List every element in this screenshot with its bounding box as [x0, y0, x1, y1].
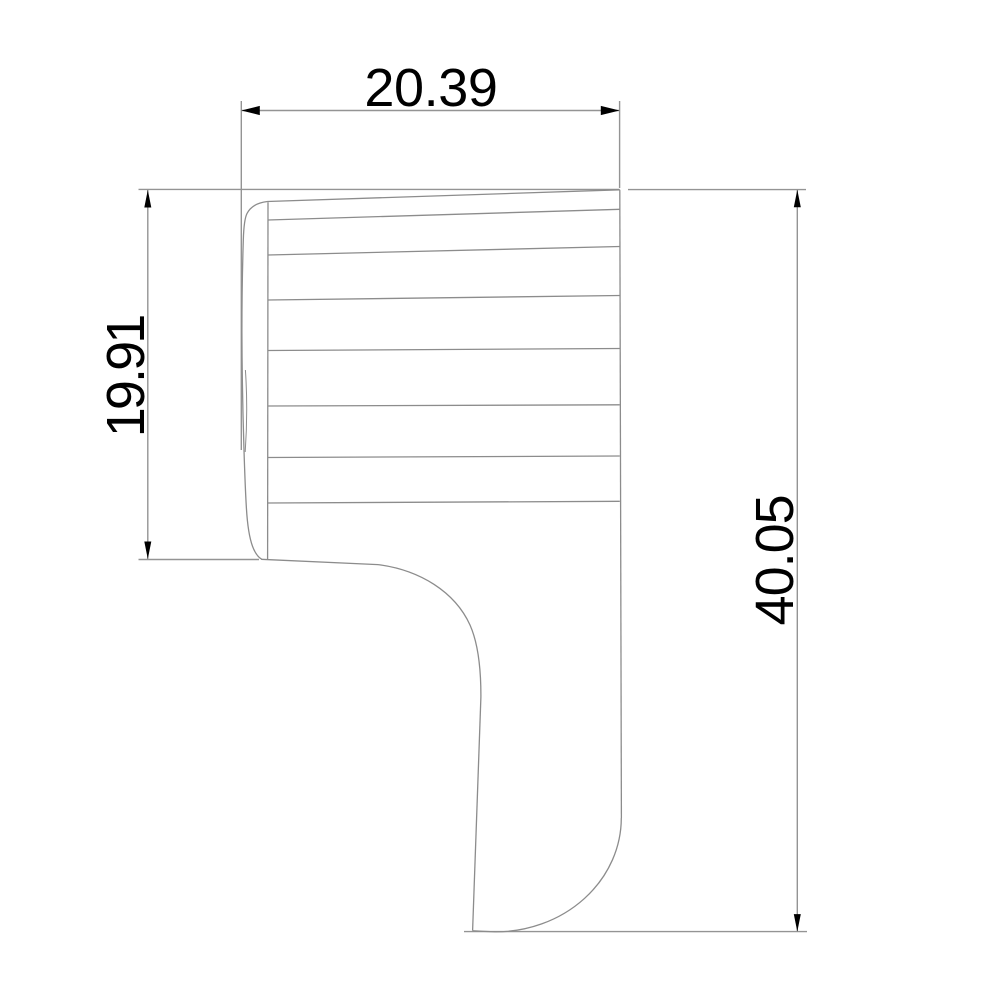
svg-text:19.91: 19.91 [96, 316, 156, 437]
svg-text:20.39: 20.39 [364, 58, 497, 118]
svg-text:40.05: 40.05 [745, 495, 805, 625]
